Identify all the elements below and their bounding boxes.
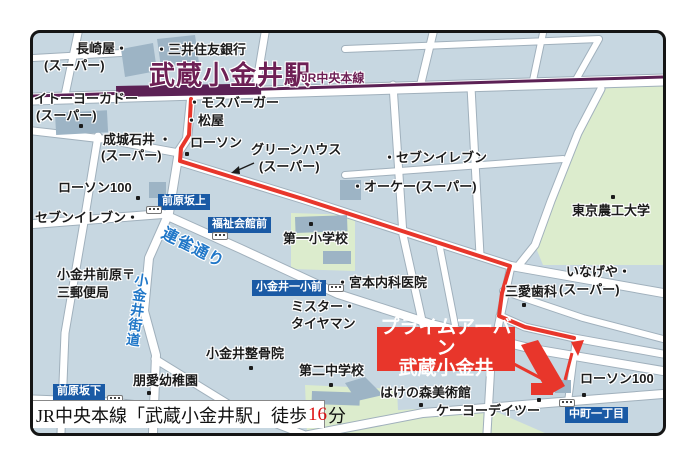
- university-campus-green: [534, 81, 663, 265]
- map-screenshot: 長崎屋・(スーパー)・三井住友銀行イトーヨーカドー(スーパー)・モスバーガー・松…: [0, 0, 684, 456]
- greenhouse-arrow: [231, 163, 254, 174]
- map-graphics: [33, 33, 663, 433]
- map-area: [30, 30, 666, 436]
